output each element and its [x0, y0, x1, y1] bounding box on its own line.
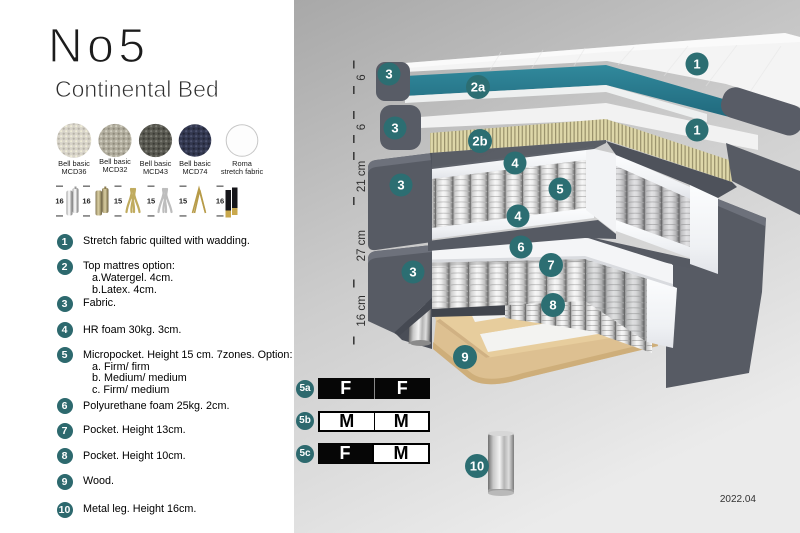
svg-text:16: 16 [82, 197, 90, 206]
svg-text:16: 16 [216, 197, 224, 206]
svg-text:3: 3 [397, 178, 404, 193]
svg-text:2a: 2a [471, 80, 486, 95]
svg-text:15: 15 [114, 197, 122, 206]
svg-text:1: 1 [693, 123, 700, 138]
svg-text:4: 4 [514, 209, 522, 224]
svg-text:10: 10 [470, 459, 484, 474]
svg-text:9: 9 [461, 350, 468, 365]
svg-text:3: 3 [391, 121, 398, 136]
svg-text:6: 6 [517, 240, 524, 255]
svg-text:3: 3 [409, 265, 416, 280]
svg-text:2b: 2b [472, 134, 487, 149]
svg-text:16 cm: 16 cm [356, 295, 368, 326]
svg-text:6: 6 [356, 74, 368, 80]
svg-text:15: 15 [179, 197, 187, 206]
svg-text:16: 16 [55, 197, 63, 206]
svg-text:6: 6 [356, 124, 368, 130]
svg-text:1: 1 [693, 57, 700, 72]
svg-text:5: 5 [556, 182, 563, 197]
svg-text:8: 8 [549, 298, 556, 313]
svg-text:7: 7 [547, 258, 554, 273]
svg-text:3: 3 [385, 67, 392, 82]
svg-text:4: 4 [511, 156, 519, 171]
svg-text:15: 15 [147, 197, 155, 206]
svg-text:21 cm: 21 cm [356, 161, 368, 192]
svg-text:27 cm: 27 cm [356, 230, 368, 261]
